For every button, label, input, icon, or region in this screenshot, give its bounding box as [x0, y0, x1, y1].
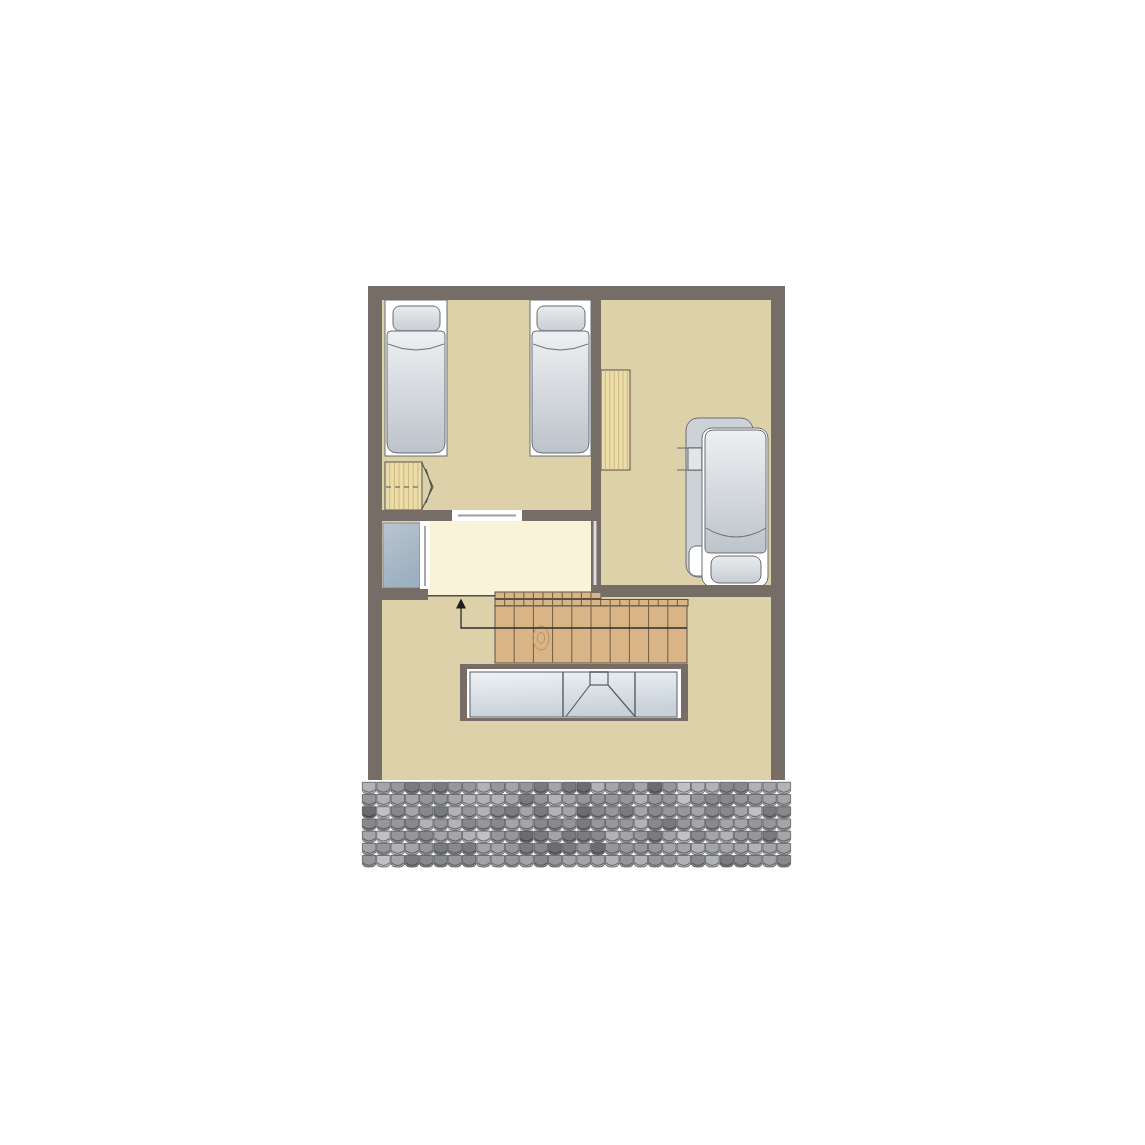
bed-1-mattress — [387, 331, 445, 453]
bed-3-pillow — [711, 556, 761, 583]
skylight-void — [460, 664, 688, 721]
closet-unit — [383, 523, 420, 588]
attic-floor-plan — [0, 0, 1145, 1145]
stair-handrail-upper — [495, 592, 601, 599]
bed-1 — [385, 300, 447, 456]
outer-wall-left — [368, 286, 382, 780]
landing-floor — [428, 521, 591, 596]
wall-bedroom1-south-left — [382, 510, 452, 521]
wall-closet-south — [368, 588, 428, 600]
skylight-glass — [470, 672, 677, 717]
bed-2-pillow — [537, 306, 585, 331]
outer-wall-top — [368, 286, 785, 300]
bed-2 — [530, 300, 591, 456]
bed-3-mattress — [705, 430, 766, 553]
wall-bedroom1-south-right — [522, 510, 601, 521]
bed-3 — [677, 418, 768, 587]
bed-1-pillow — [393, 306, 440, 331]
floor-plan — [368, 286, 785, 780]
outer-wall-right — [771, 286, 785, 780]
bed-2-mattress — [532, 331, 589, 453]
bedside-shelf — [688, 448, 702, 470]
desk-shelf — [601, 370, 630, 470]
wall-bedroom2-south — [601, 585, 771, 597]
